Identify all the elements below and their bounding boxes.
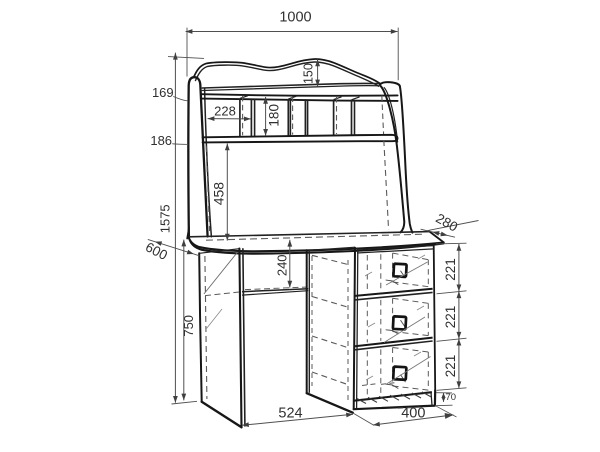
- svg-text:169: 169: [152, 85, 174, 100]
- svg-text:1000: 1000: [279, 9, 311, 25]
- svg-text:221: 221: [443, 355, 458, 378]
- svg-text:228: 228: [214, 103, 236, 118]
- svg-text:221: 221: [443, 306, 458, 329]
- svg-text:1575: 1575: [158, 204, 173, 233]
- svg-text:524: 524: [278, 406, 302, 422]
- svg-text:400: 400: [401, 405, 425, 421]
- svg-text:750: 750: [181, 315, 196, 337]
- svg-text:186: 186: [150, 133, 172, 148]
- svg-text:70: 70: [446, 392, 457, 403]
- svg-text:150: 150: [301, 63, 315, 84]
- svg-text:458: 458: [211, 182, 227, 206]
- svg-text:180: 180: [266, 104, 281, 127]
- svg-text:221: 221: [443, 258, 458, 281]
- svg-text:240: 240: [274, 254, 289, 276]
